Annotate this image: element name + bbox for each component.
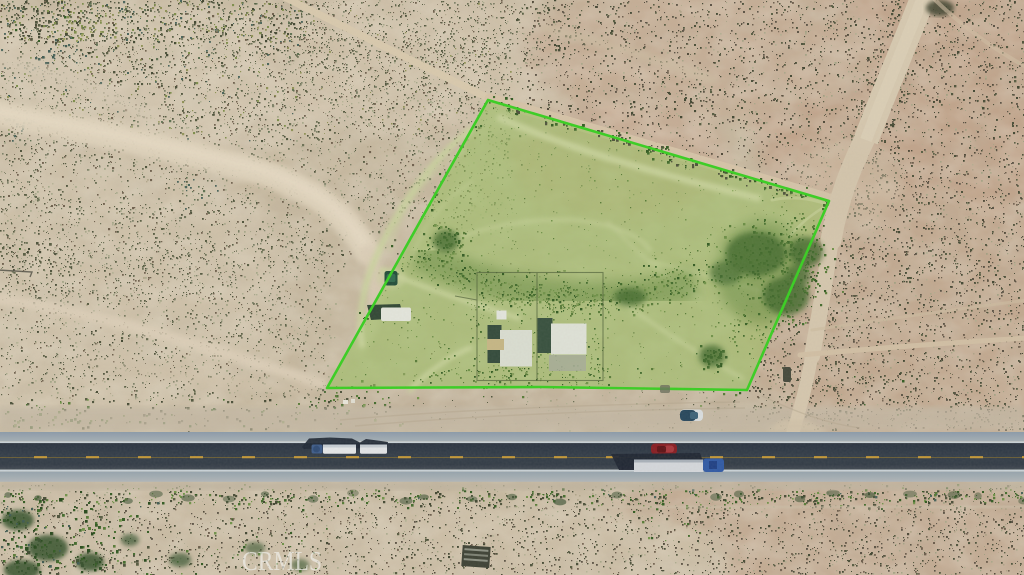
- svg-text:CRMLS: CRMLS: [242, 546, 322, 575]
